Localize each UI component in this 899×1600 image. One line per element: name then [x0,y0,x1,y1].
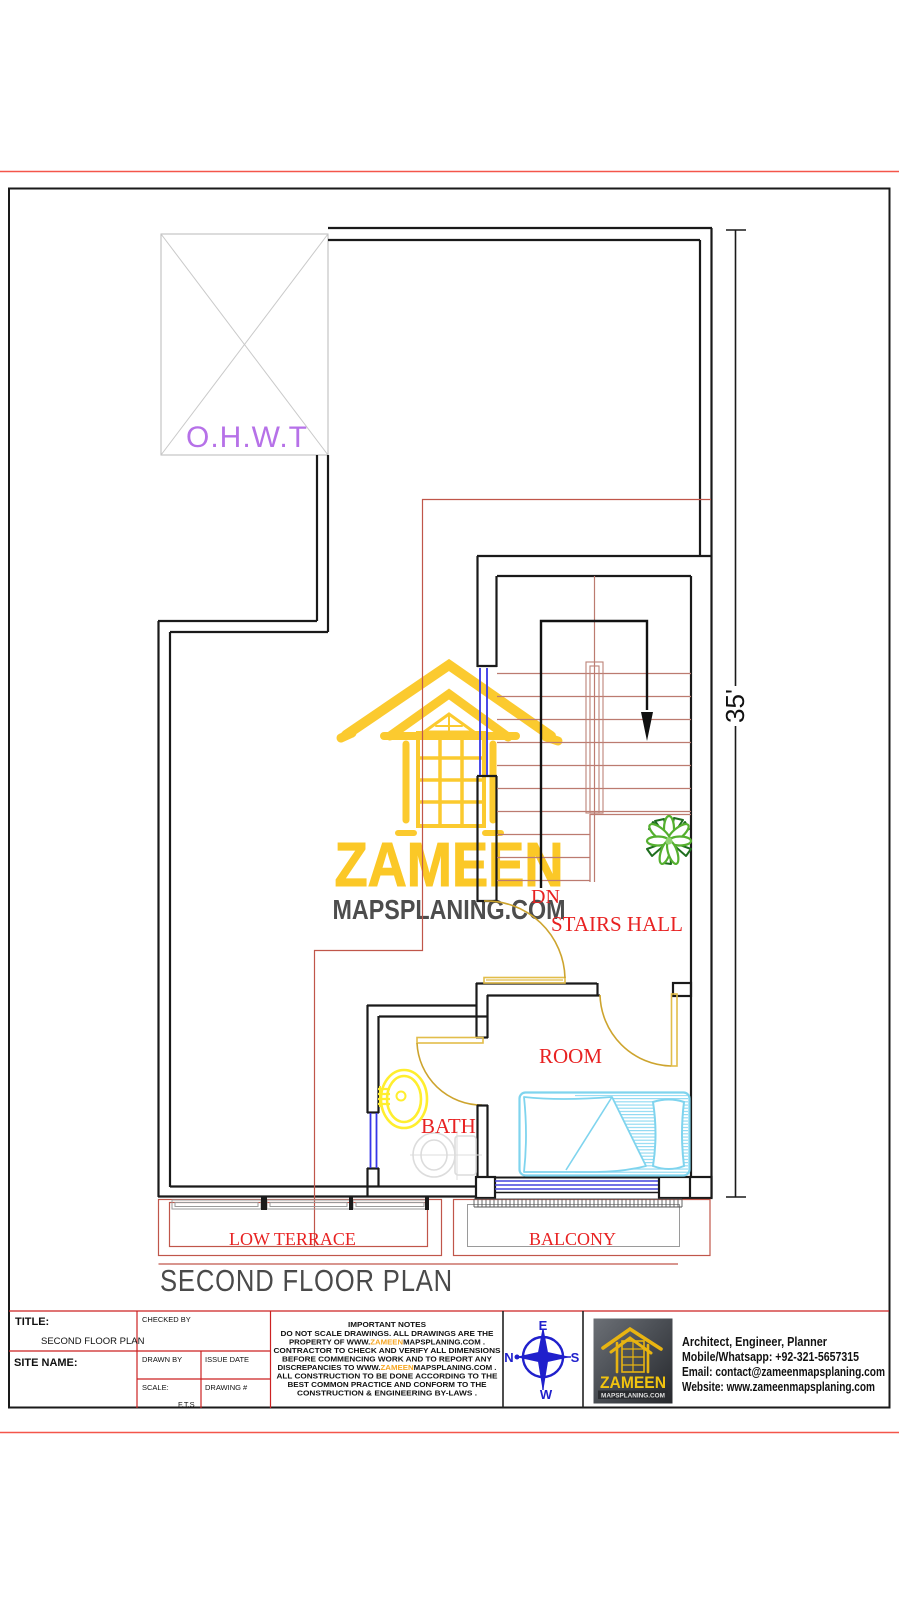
svg-text:DRAWN BY: DRAWN BY [142,1355,182,1364]
svg-text:Architect, Engineer, Planner: Architect, Engineer, Planner [682,1335,827,1349]
svg-text:STAIRS HALL: STAIRS HALL [551,912,683,936]
svg-text:BALCONY: BALCONY [529,1229,616,1249]
svg-text:35': 35' [720,689,750,723]
svg-text:ROOM: ROOM [539,1044,602,1068]
svg-text:SECOND FLOOR PLAN: SECOND FLOOR PLAN [41,1336,145,1347]
svg-text:Email: contact@zameenmapsplani: Email: contact@zameenmapsplaning.com [682,1365,885,1379]
svg-text:O.H.W.T: O.H.W.T [186,421,308,454]
svg-text:Mobile/Whatsapp: +92-321-56573: Mobile/Whatsapp: +92-321-5657315 [682,1350,859,1364]
svg-text:W: W [540,1387,553,1402]
svg-text:IMPORTANT NOTES: IMPORTANT NOTES [348,1320,426,1329]
svg-text:CONSTRUCTION & ENGINEERING BY-: CONSTRUCTION & ENGINEERING BY-LAWS . [297,1389,477,1398]
svg-text:CHECKED BY: CHECKED BY [142,1315,191,1324]
svg-text:ZAMEEN: ZAMEEN [335,831,564,900]
svg-text:DN: DN [531,886,560,908]
svg-text:TITLE:: TITLE: [15,1316,49,1328]
svg-text:BATH: BATH [421,1114,476,1138]
svg-text:MAPSPLANING.COM: MAPSPLANING.COM [601,1393,665,1400]
svg-text:ISSUE DATE: ISSUE DATE [205,1355,249,1364]
svg-text:E: E [539,1318,548,1333]
svg-text:DRAWING #: DRAWING # [205,1383,248,1392]
svg-text:LOW TERRACE: LOW TERRACE [229,1229,356,1249]
svg-text:ZAMEEN: ZAMEEN [600,1373,666,1392]
svg-text:S: S [571,1350,580,1365]
svg-text:SECOND FLOOR PLAN: SECOND FLOOR PLAN [160,1263,453,1298]
svg-text:N: N [504,1350,513,1365]
svg-text:Website: www.zameenmapsplaning: Website: www.zameenmapsplaning.com [682,1380,875,1394]
svg-text:SITE NAME:: SITE NAME: [14,1357,78,1369]
svg-text:F.T.S: F.T.S [178,1400,195,1409]
svg-text:SCALE:: SCALE: [142,1383,169,1392]
